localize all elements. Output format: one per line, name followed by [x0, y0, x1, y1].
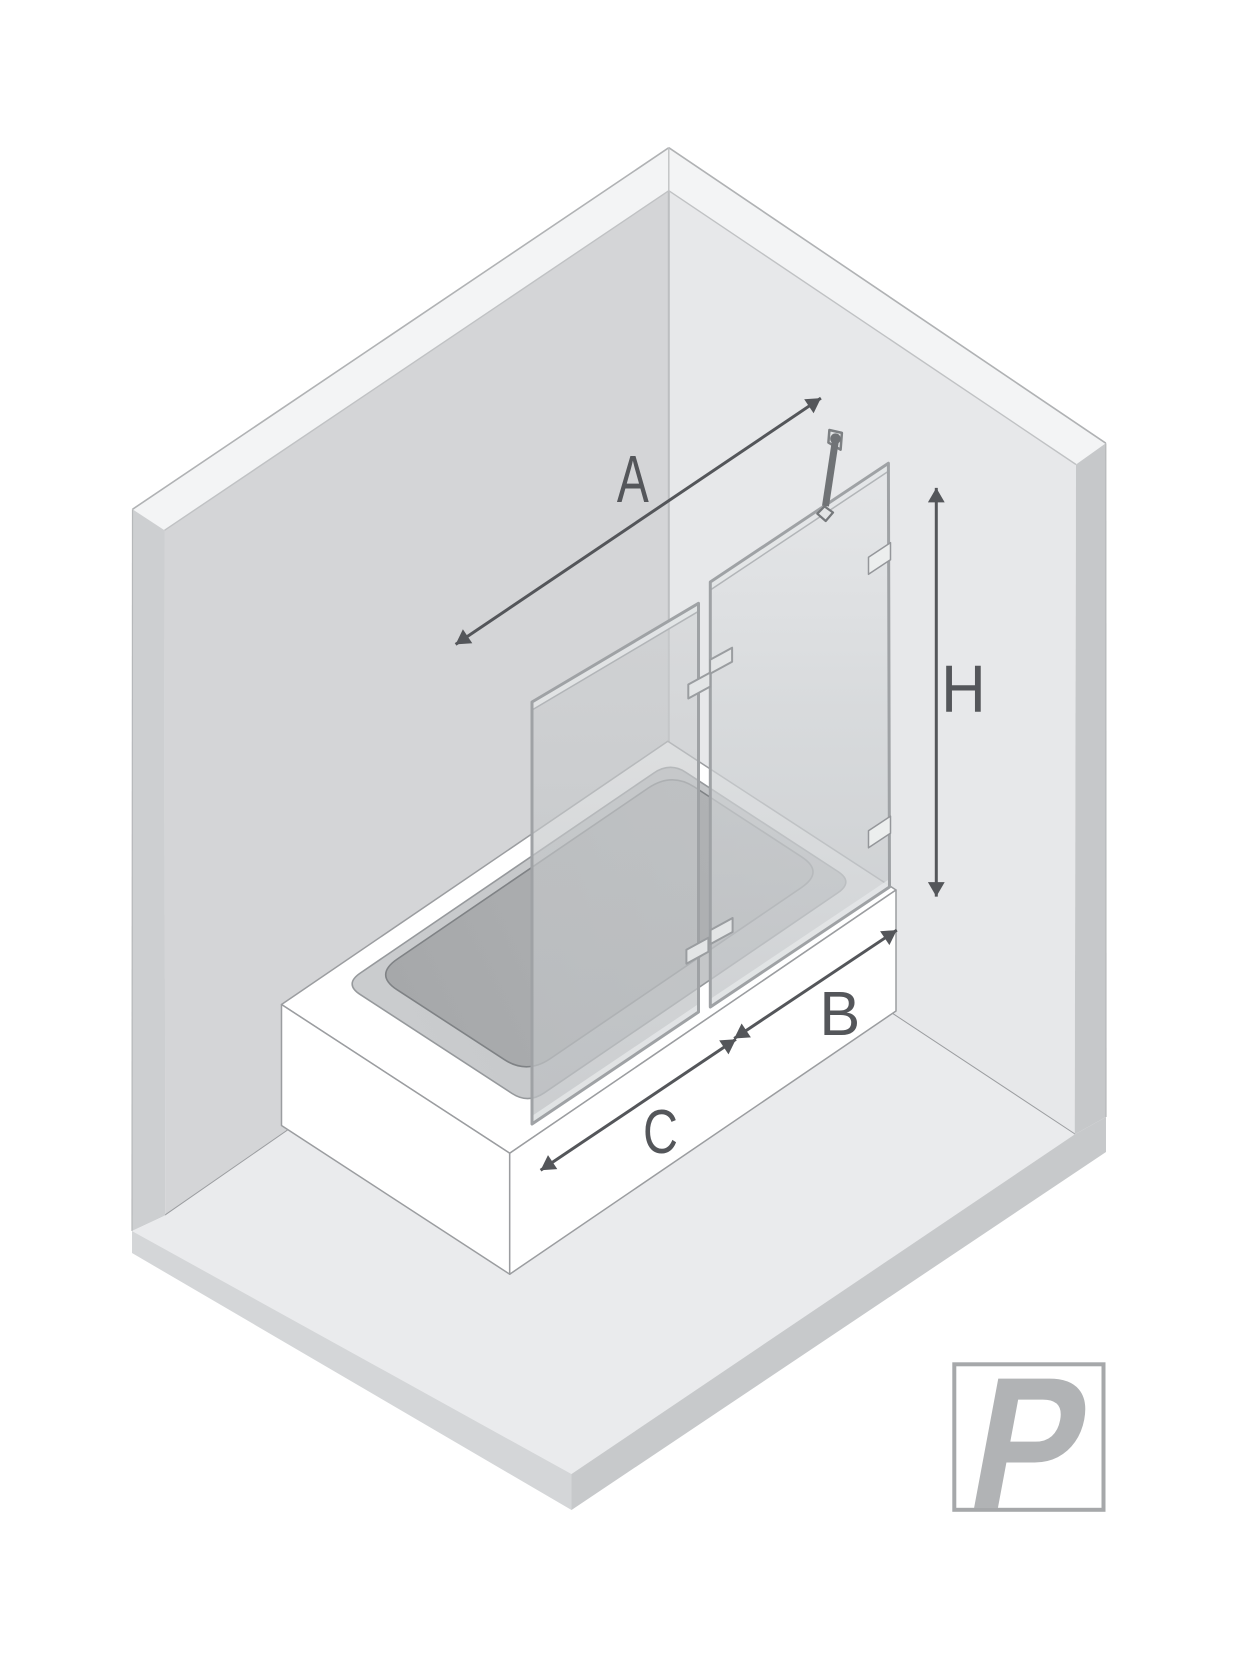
svg-text:A: A [617, 443, 649, 516]
svg-text:B: B [819, 979, 860, 1049]
svg-text:C: C [643, 1097, 678, 1166]
svg-text:H: H [941, 652, 986, 727]
